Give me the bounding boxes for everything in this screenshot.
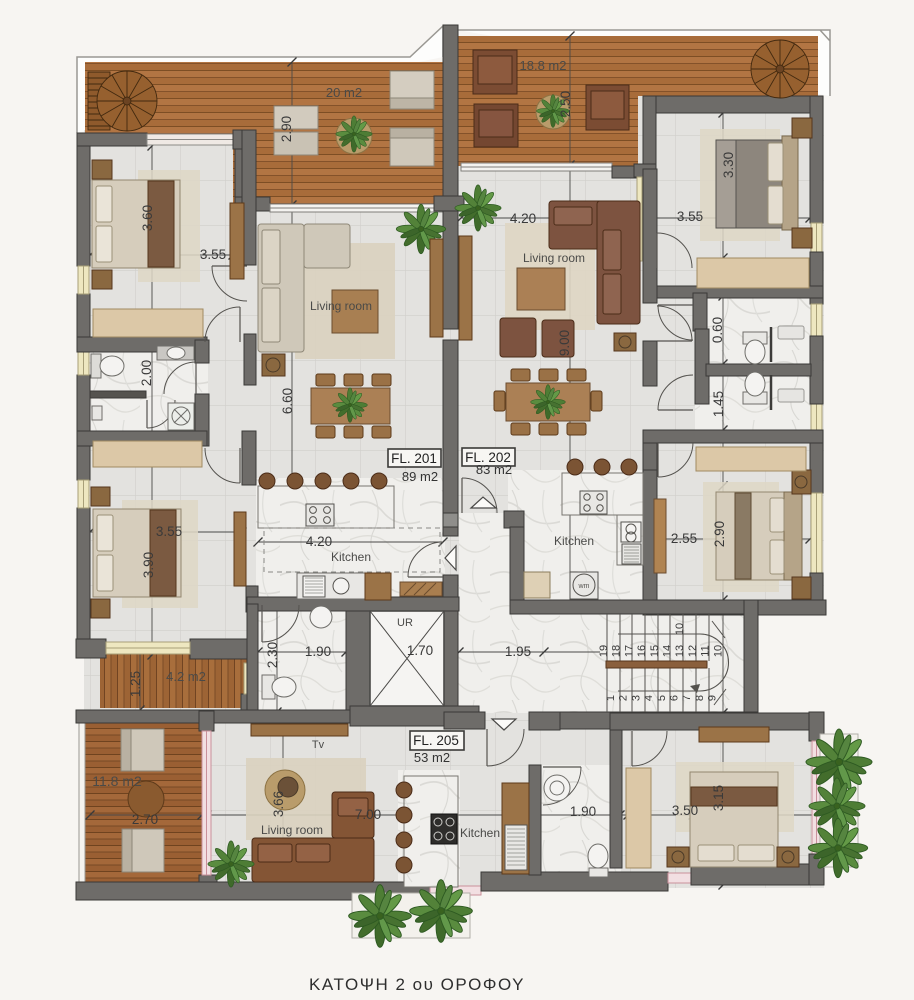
svg-text:0.60: 0.60 [710,317,725,343]
svg-text:1: 1 [605,695,617,701]
svg-text:Living room: Living room [261,823,323,837]
svg-text:Kitchen: Kitchen [331,550,371,564]
svg-text:Living room: Living room [310,299,372,313]
svg-text:1.70: 1.70 [407,643,433,658]
svg-text:3.55: 3.55 [677,209,703,224]
svg-text:2.00: 2.00 [139,360,154,386]
svg-text:3.60: 3.60 [140,205,155,231]
svg-text:ΚΑΤΟΨΗ 2 ου ΟΡΟΦΟΥ: ΚΑΤΟΨΗ 2 ου ΟΡΟΦΟΥ [309,975,525,994]
svg-text:9.00: 9.00 [557,330,572,356]
svg-text:FL. 205: FL. 205 [413,733,459,748]
svg-text:3.50: 3.50 [672,803,698,818]
svg-text:10: 10 [674,623,686,635]
svg-text:8: 8 [694,695,706,701]
svg-text:83 m2: 83 m2 [476,462,512,477]
svg-text:3.55: 3.55 [200,247,226,262]
svg-text:2.50: 2.50 [558,91,573,117]
svg-text:14: 14 [662,645,674,657]
svg-text:20 m2: 20 m2 [326,85,362,100]
svg-text:2.70: 2.70 [132,812,158,827]
svg-text:UR: UR [397,617,413,629]
svg-text:12: 12 [687,645,699,657]
svg-text:3.66: 3.66 [271,791,286,817]
svg-text:17: 17 [623,645,635,657]
svg-text:FL. 201: FL. 201 [391,451,437,466]
svg-text:2.30: 2.30 [265,642,280,668]
svg-text:89 m2: 89 m2 [402,469,438,484]
svg-text:16: 16 [636,645,648,657]
svg-text:1.95: 1.95 [505,644,531,659]
svg-text:11.8 m2: 11.8 m2 [92,773,142,789]
svg-text:7.00: 7.00 [355,807,381,822]
svg-text:Living room: Living room [523,251,585,265]
svg-text:6.60: 6.60 [280,388,295,414]
svg-text:4.20: 4.20 [306,534,332,549]
svg-text:2.90: 2.90 [279,116,294,142]
svg-text:7: 7 [681,695,693,701]
svg-text:6: 6 [669,695,681,701]
svg-text:19: 19 [598,645,610,657]
svg-text:2.90: 2.90 [712,521,727,547]
svg-text:13: 13 [674,645,686,657]
svg-text:18.8 m2: 18.8 m2 [520,58,567,73]
svg-text:9: 9 [707,695,719,701]
svg-text:4: 4 [643,695,655,701]
svg-text:3.15: 3.15 [711,785,726,811]
svg-text:18: 18 [611,645,623,657]
svg-text:Tv: Tv [312,739,325,751]
svg-text:1.90: 1.90 [570,804,596,819]
svg-text:53 m2: 53 m2 [414,750,450,765]
svg-text:10: 10 [712,645,724,657]
svg-text:wm: wm [578,583,590,590]
svg-text:Kitchen: Kitchen [554,534,594,548]
svg-text:15: 15 [649,645,661,657]
svg-text:2: 2 [618,695,630,701]
svg-text:3: 3 [630,695,642,701]
svg-text:1.25: 1.25 [128,671,143,697]
svg-text:3.90: 3.90 [141,552,156,578]
svg-text:2.55: 2.55 [671,531,697,546]
svg-text:Kitchen: Kitchen [460,826,500,840]
svg-text:3.55: 3.55 [156,524,182,539]
svg-text:5: 5 [656,695,668,701]
svg-text:11: 11 [700,645,712,656]
svg-text:1.45: 1.45 [711,391,726,417]
svg-text:1.90: 1.90 [305,644,331,659]
svg-text:4.2 m2: 4.2 m2 [166,669,206,684]
svg-text:4.20: 4.20 [510,211,536,226]
svg-text:3.30: 3.30 [721,152,736,178]
